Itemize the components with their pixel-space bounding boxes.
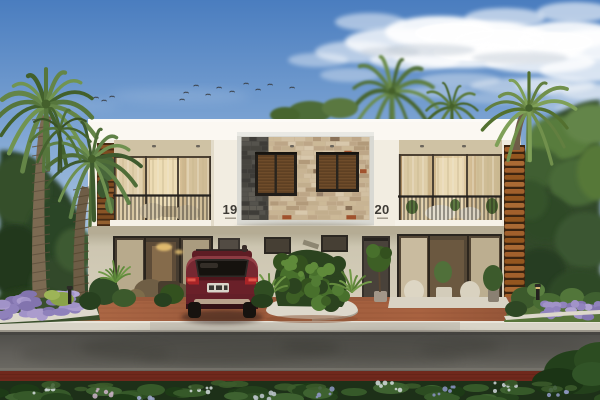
svg-text:20: 20 — [374, 202, 389, 217]
svg-text:19: 19 — [222, 202, 237, 217]
